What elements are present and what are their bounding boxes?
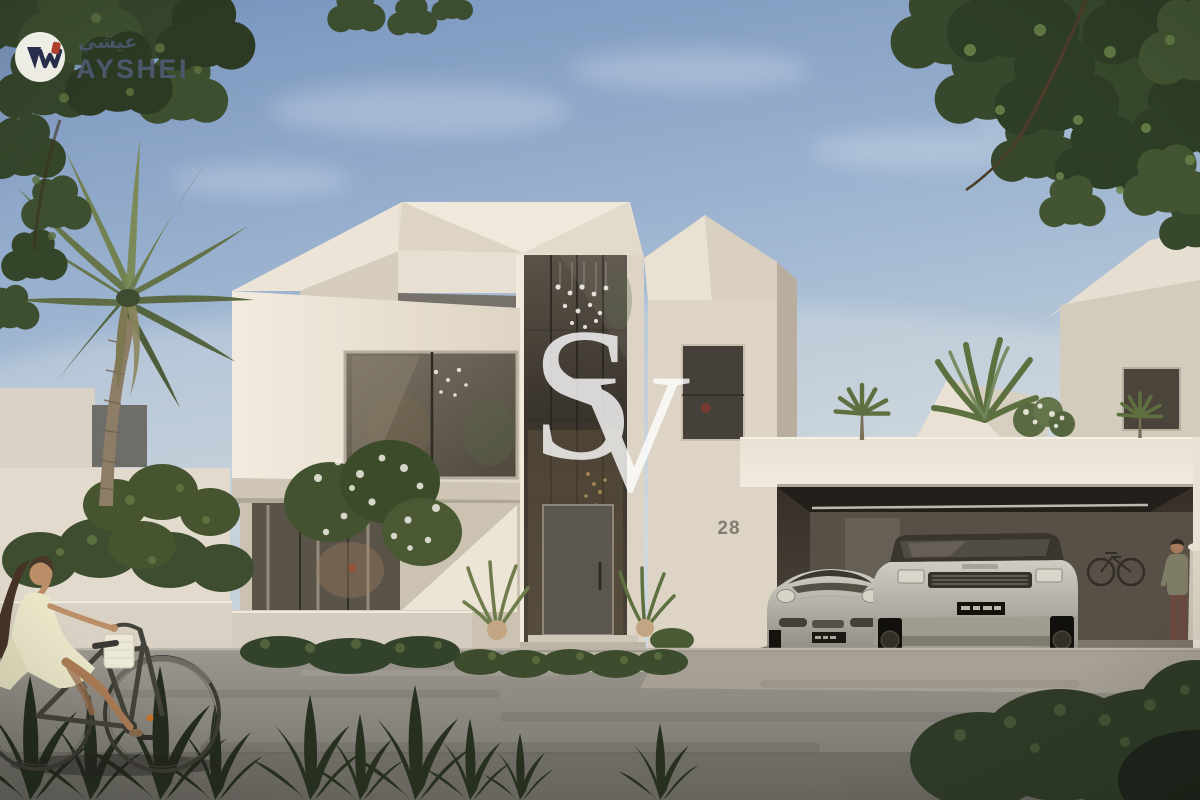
listing-photo: 28: [0, 0, 1200, 800]
brand-wordmark: AYSHEI: [76, 54, 189, 84]
brand-name-arabic: عيشي: [78, 31, 137, 53]
watermark-letter-v: V: [569, 339, 692, 527]
rendered-scene: 28: [0, 0, 1200, 800]
